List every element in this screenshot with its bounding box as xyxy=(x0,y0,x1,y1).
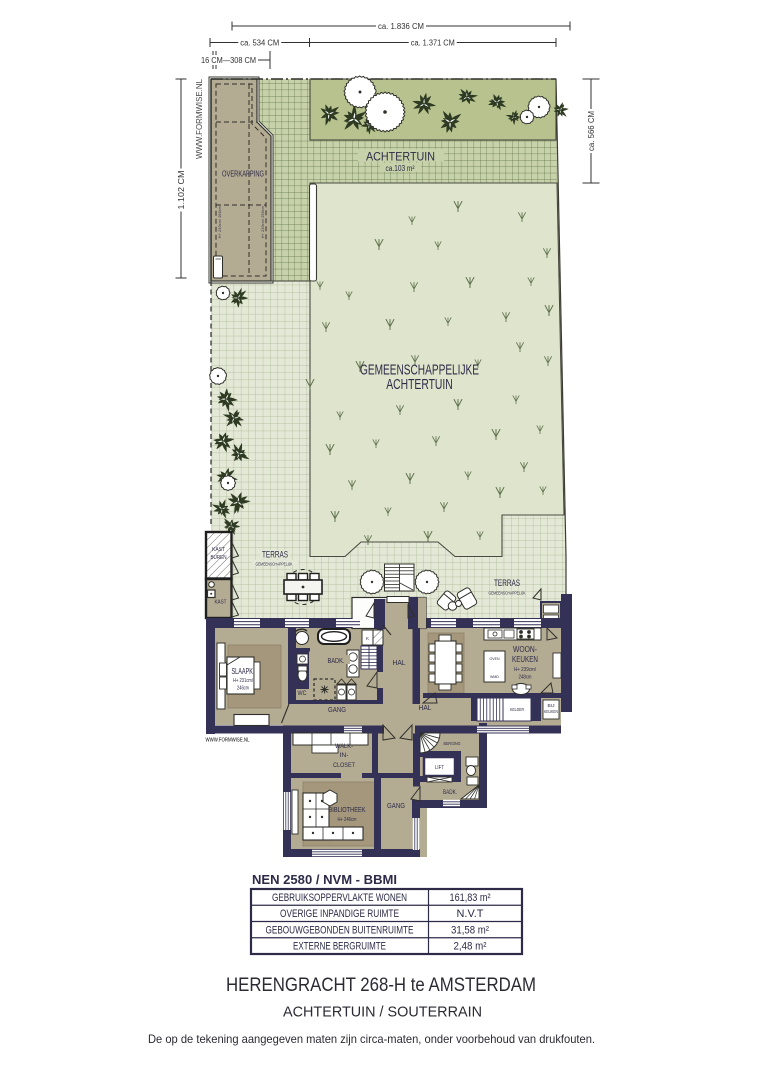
svg-text:TERRAS: TERRAS xyxy=(262,550,288,560)
svg-text:HAL: HAL xyxy=(393,658,406,667)
svg-text:GANG: GANG xyxy=(328,705,346,714)
svg-text:SLAAPK.: SLAAPK. xyxy=(232,667,255,676)
svg-text:H+ 231cm/: H+ 231cm/ xyxy=(233,678,253,684)
svg-text:ACHTERTUIN / SOUTERRAIN: ACHTERTUIN / SOUTERRAIN xyxy=(283,1004,482,1021)
svg-text:HAL: HAL xyxy=(419,703,432,712)
svg-text:HERENGRACHT 268-H te AMSTERDAM: HERENGRACHT 268-H te AMSTERDAM xyxy=(226,975,536,996)
svg-text:De op de tekening aangegeven m: De op de tekening aangegeven maten zijn … xyxy=(148,1032,595,1046)
svg-text:248cm: 248cm xyxy=(519,675,532,681)
svg-text:1.102 CM: 1.102 CM xyxy=(177,170,186,209)
svg-text:GEBOUWGEBONDEN BUITENRUIMTE: GEBOUWGEBONDEN BUITENRUIMTE xyxy=(266,924,414,936)
svg-text:CLOSET: CLOSET xyxy=(333,762,355,769)
svg-text:KEUKEN: KEUKEN xyxy=(512,655,538,664)
svg-text:GANG: GANG xyxy=(387,801,405,810)
svg-text:161,83 m²: 161,83 m² xyxy=(450,892,491,904)
svg-text:H+ 230cm/ 250cm: H+ 230cm/ 250cm xyxy=(261,206,265,238)
svg-text:KEUKEN: KEUKEN xyxy=(544,709,558,714)
svg-text:H+ 239cm/: H+ 239cm/ xyxy=(514,667,536,673)
svg-text:2,48 m²: 2,48 m² xyxy=(454,941,487,953)
svg-text:ca. 534 CM: ca. 534 CM xyxy=(240,38,279,47)
svg-text:GEMEENSCHAPPELIJK: GEMEENSCHAPPELIJK xyxy=(256,561,293,566)
svg-text:ca. 1.371 CM: ca. 1.371 CM xyxy=(411,38,455,47)
svg-text:LIFT: LIFT xyxy=(435,765,444,771)
svg-text:OVEN: OVEN xyxy=(490,656,500,661)
svg-text:NEN 2580 / NVM - BBMI: NEN 2580 / NVM - BBMI xyxy=(252,873,397,887)
svg-text:246cm: 246cm xyxy=(237,686,249,692)
svg-text:ACHTERTUIN: ACHTERTUIN xyxy=(386,377,453,393)
svg-text:GEMEENSCHAPPELIJK: GEMEENSCHAPPELIJK xyxy=(489,591,526,596)
svg-text:GEBRUIKSOPPERVLAKTE WONEN: GEBRUIKSOPPERVLAKTE WONEN xyxy=(272,892,407,904)
svg-text:BIJ: BIJ xyxy=(548,703,555,708)
svg-text:16 CM—308 CM: 16 CM—308 CM xyxy=(201,56,256,65)
svg-text:BIBLIOTHEEK: BIBLIOTHEEK xyxy=(329,805,366,814)
svg-text:H+ 246cm: H+ 246cm xyxy=(338,817,357,823)
svg-text:OVERKAPPING: OVERKAPPING xyxy=(222,170,264,179)
svg-text:OVERIGE INPANDIGE RUIMTE: OVERIGE INPANDIGE RUIMTE xyxy=(280,908,399,920)
svg-text:BADK.: BADK. xyxy=(443,790,457,796)
svg-text:31,58 m²: 31,58 m² xyxy=(451,924,489,936)
svg-text:KAST: KAST xyxy=(215,600,228,606)
svg-text:WWW.FORMWISE.NL: WWW.FORMWISE.NL xyxy=(195,78,204,159)
svg-text:WOON-: WOON- xyxy=(513,645,537,654)
svg-text:WMD: WMD xyxy=(490,674,499,679)
svg-text:ca.103 m²: ca.103 m² xyxy=(386,164,415,173)
svg-text:EXTERNE BERGRUIMTE: EXTERNE BERGRUIMTE xyxy=(293,941,386,953)
svg-text:ca. 566 CM: ca. 566 CM xyxy=(587,111,596,151)
svg-text:WALK-: WALK- xyxy=(335,743,353,750)
svg-text:N.V.T: N.V.T xyxy=(457,908,484,920)
svg-text:TERRAS: TERRAS xyxy=(494,578,520,588)
svg-text:KELDER: KELDER xyxy=(510,707,524,712)
svg-text:KAST: KAST xyxy=(212,547,226,553)
svg-text:K: K xyxy=(366,636,369,641)
svg-text:ACHTERTUIN: ACHTERTUIN xyxy=(366,150,435,164)
svg-text:BADK.: BADK. xyxy=(328,658,345,665)
svg-text:H+ 230cm/ 260cm: H+ 230cm/ 260cm xyxy=(218,206,222,238)
svg-text:IN-: IN- xyxy=(340,752,349,759)
svg-text:BERGING: BERGING xyxy=(444,741,461,746)
svg-text:WWW.FORMWISE.NL: WWW.FORMWISE.NL xyxy=(206,738,250,744)
svg-text:WC: WC xyxy=(298,691,308,697)
svg-text:BUREN: BUREN xyxy=(211,555,227,561)
svg-text:ca. 1.836 CM: ca. 1.836 CM xyxy=(378,22,424,31)
